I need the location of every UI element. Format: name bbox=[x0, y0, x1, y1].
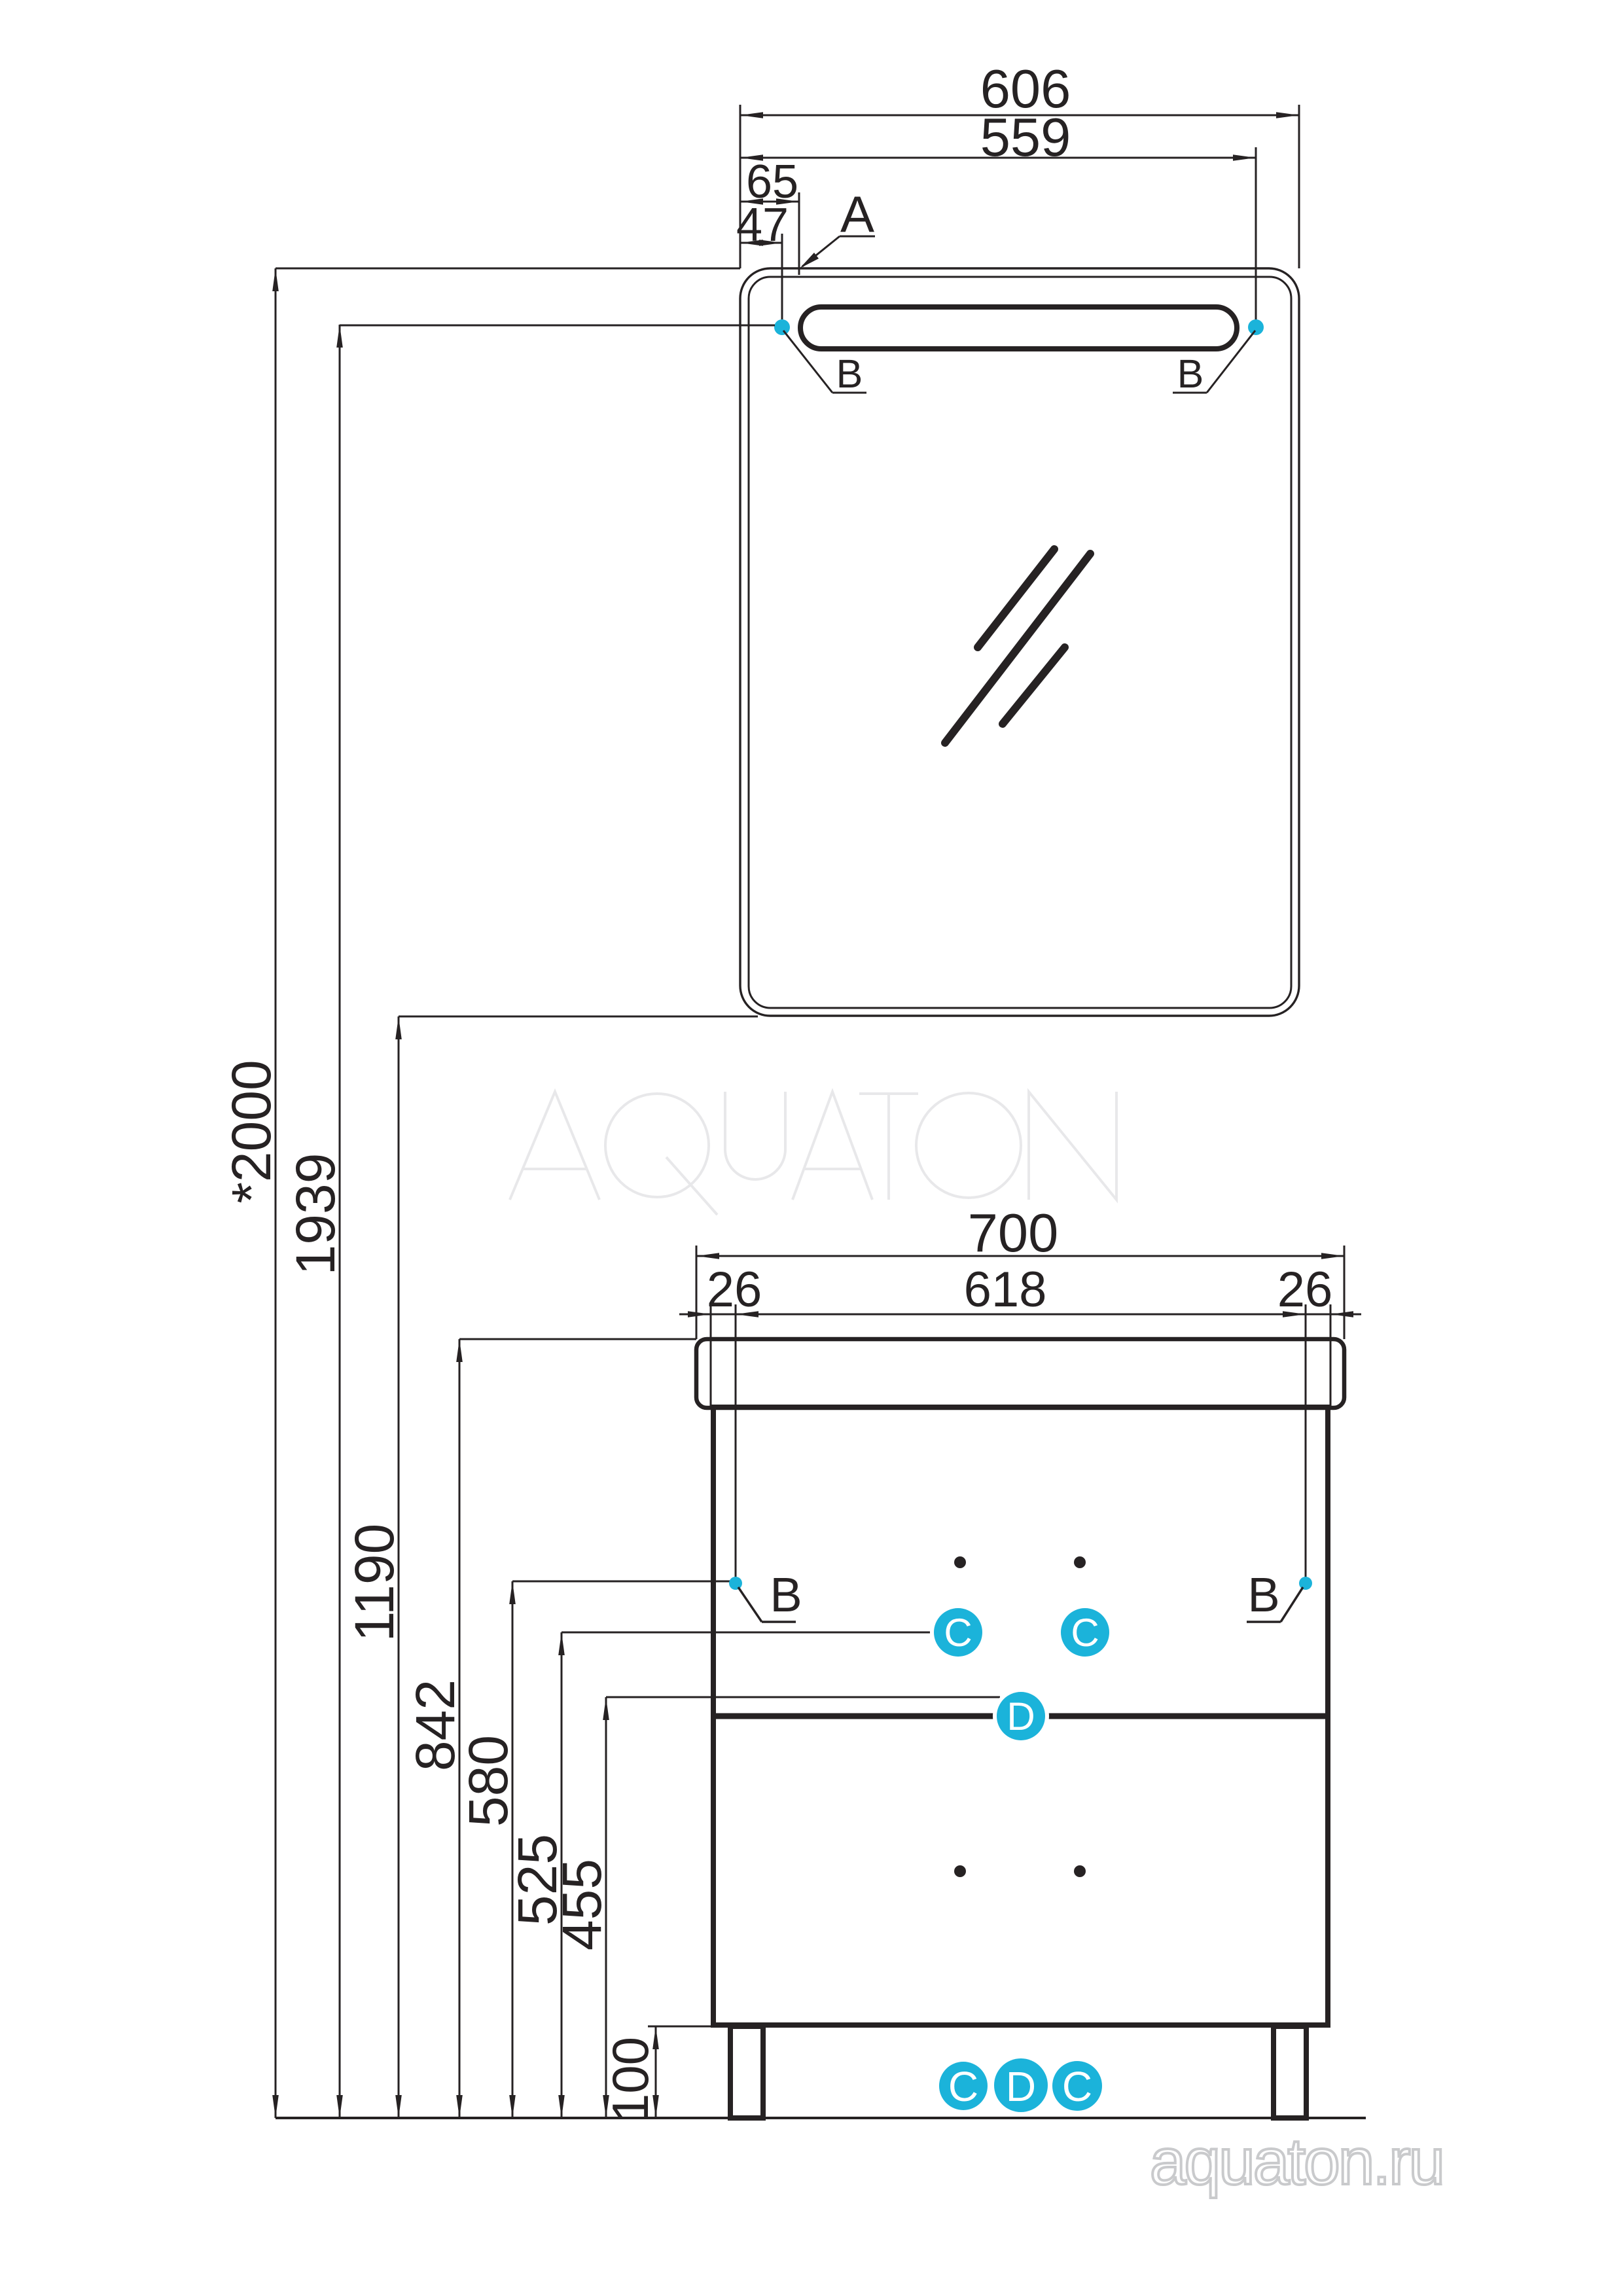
svg-text:A: A bbox=[840, 185, 874, 243]
svg-text:580: 580 bbox=[457, 1735, 519, 1827]
svg-text:47: 47 bbox=[736, 199, 789, 251]
svg-text:1939: 1939 bbox=[285, 1153, 346, 1276]
svg-text:B: B bbox=[1247, 1568, 1279, 1622]
svg-text:C: C bbox=[948, 2063, 978, 2110]
svg-text:C: C bbox=[944, 1611, 972, 1655]
svg-text:1190: 1190 bbox=[344, 1524, 405, 1642]
svg-text:B: B bbox=[770, 1568, 802, 1622]
svg-text:C: C bbox=[1062, 2063, 1092, 2110]
svg-text:B: B bbox=[836, 351, 863, 396]
svg-text:aquaton.ru: aquaton.ru bbox=[1150, 2125, 1443, 2198]
svg-text:100: 100 bbox=[601, 2037, 659, 2122]
svg-text:842: 842 bbox=[404, 1679, 466, 1771]
svg-text:618: 618 bbox=[964, 1262, 1047, 1318]
svg-text:26: 26 bbox=[707, 1262, 762, 1318]
svg-text:B: B bbox=[1177, 351, 1204, 396]
svg-text:C: C bbox=[1071, 1611, 1099, 1655]
svg-text:559: 559 bbox=[980, 107, 1071, 168]
svg-text:26: 26 bbox=[1277, 1262, 1333, 1318]
svg-text:*2000: *2000 bbox=[221, 1060, 282, 1204]
svg-text:455: 455 bbox=[551, 1859, 613, 1950]
svg-text:D: D bbox=[1006, 2063, 1036, 2110]
svg-text:700: 700 bbox=[968, 1202, 1058, 1263]
svg-text:D: D bbox=[1007, 1695, 1035, 1738]
